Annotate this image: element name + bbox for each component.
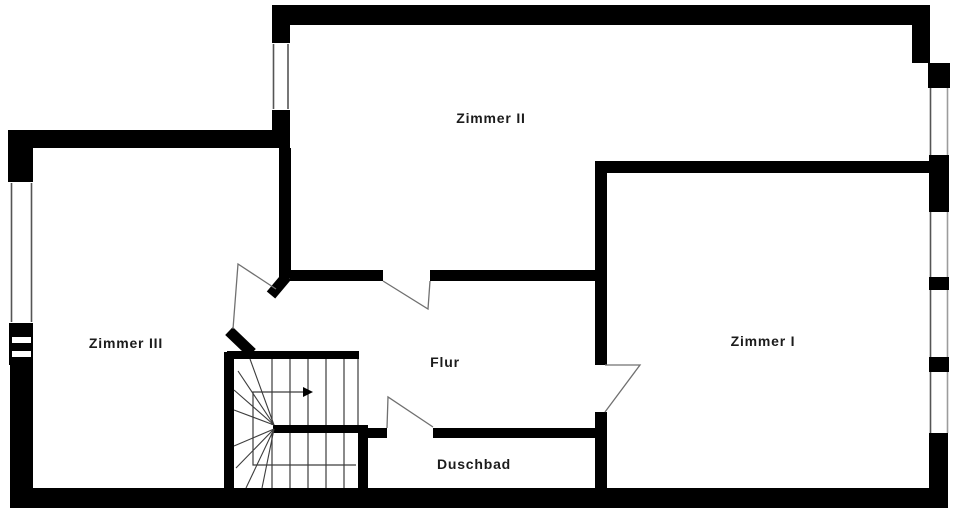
west-wall-corner-block <box>8 130 33 182</box>
zimmer3-north-wall <box>8 130 290 148</box>
east-wall-block-2 <box>929 277 949 290</box>
west-window-glass <box>10 182 33 323</box>
stair-mid-wall <box>273 425 368 433</box>
east-wall-bump <box>928 63 950 88</box>
west-wall-lower <box>10 360 33 508</box>
duschbad-north-wall-left <box>358 428 387 438</box>
zimmer2-west-wall-upper <box>272 5 290 43</box>
flur-north-wall-right <box>430 270 607 281</box>
flur-north-wall-left <box>290 270 383 281</box>
room-label-zimmer-1: Zimmer I <box>731 333 796 349</box>
zimmer1-west-wall-upper <box>595 161 607 365</box>
duschbad-north-wall-right <box>433 428 605 438</box>
outer-wall-top <box>272 5 930 25</box>
east-window-3-glass <box>929 290 949 357</box>
west-window-slit-1 <box>12 337 31 343</box>
plan-background <box>0 0 960 517</box>
zimmer3-east-wall <box>279 148 291 278</box>
east-wall-block-1 <box>929 155 949 212</box>
east-wall-upper <box>912 5 930 63</box>
floor-plan-canvas: Zimmer IIZimmer IZimmer IIIFlurDuschbad <box>0 0 960 517</box>
east-window-2-glass <box>929 212 949 277</box>
east-window-4-glass <box>929 372 949 433</box>
floor-plan: Zimmer IIZimmer IZimmer IIIFlurDuschbad <box>0 0 960 517</box>
zimmer1-west-wall-lower <box>595 412 607 492</box>
zimmer1-north-wall <box>595 161 930 173</box>
west-wall-mid-block <box>9 323 33 365</box>
east-wall-corner <box>929 433 948 508</box>
room-label-duschbad: Duschbad <box>437 456 511 472</box>
room-label-zimmer-3: Zimmer III <box>89 335 163 351</box>
room-label-zimmer-2: Zimmer II <box>456 110 525 126</box>
west-window-slit-2 <box>12 351 31 357</box>
east-window-1-glass <box>929 88 949 155</box>
outer-wall-bottom <box>10 488 948 508</box>
stair-west-wall <box>224 352 234 492</box>
room-label-flur: Flur <box>430 354 460 370</box>
east-wall-block-3 <box>929 357 949 372</box>
